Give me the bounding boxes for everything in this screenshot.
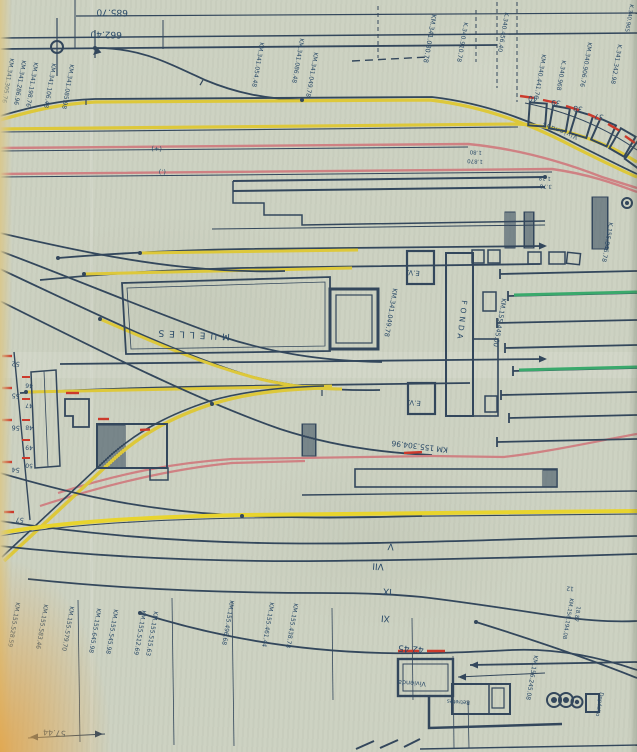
- water-tank-3-center: [575, 700, 579, 704]
- box-row-2: [488, 250, 500, 263]
- plan-label: KM.156.245.08: [524, 655, 539, 701]
- plan-label: K.340.968: [555, 60, 567, 92]
- main-1-dark: [0, 97, 637, 174]
- bottom-arrow-line: [470, 662, 637, 665]
- ev-building-top: [407, 251, 434, 284]
- siding-r-1: [500, 271, 637, 274]
- bottom-div-7: [468, 700, 469, 748]
- long-platform: [355, 469, 557, 487]
- plan-label: VII: [372, 560, 384, 571]
- plan-label: 1.18: [538, 174, 551, 181]
- plan-label: KM.341.054.48: [250, 42, 265, 88]
- plan-label: 49: [25, 443, 33, 451]
- dim-arrow-right: [95, 731, 103, 738]
- bottom-div-2: [172, 598, 174, 745]
- switch-dot: [138, 251, 142, 255]
- switch-dot: [240, 514, 244, 518]
- plan-label: KM.340.441.76: [532, 54, 547, 100]
- plan-label: XI: [381, 612, 391, 623]
- plan-label: KM.155.461.44: [260, 602, 275, 648]
- bottom-edge-line: [420, 745, 637, 749]
- plan-label: (.): [159, 168, 167, 176]
- plan-label: K.340.456.40: [496, 12, 510, 53]
- plan-label: 56: [11, 423, 20, 432]
- plan-label: 55: [11, 391, 20, 400]
- plan-label: 12: [566, 584, 574, 592]
- yellow-bright: [0, 511, 637, 533]
- plan-label: KM.341.086.48: [290, 38, 305, 84]
- switch-dot: [210, 402, 214, 406]
- siding-r-4: [505, 345, 637, 348]
- plan-label: MUELLES: [153, 327, 230, 341]
- plan-label: IX: [383, 585, 393, 596]
- siding-r-3: [497, 320, 637, 323]
- plan-label: 662.40: [90, 28, 122, 39]
- switch-dot: [300, 98, 304, 102]
- narrow-platform-mid: [44, 371, 48, 467]
- plan-label: FONDA: [455, 300, 469, 342]
- track-plan-svg: 685.70662.40KM.341.305.76KM.341.286.96KM…: [0, 0, 637, 752]
- plan-label: KM.155.528.59: [6, 602, 21, 648]
- plan-label: KM.155.583.46: [34, 604, 49, 650]
- switch-dot: [24, 390, 28, 394]
- track-ix-line: [28, 579, 637, 621]
- hatch-mid: [302, 424, 316, 456]
- hatch-col-1: [505, 212, 515, 248]
- platform-edge-1: [233, 177, 545, 181]
- lower-red-right: [432, 434, 637, 457]
- bottom-div-3: [232, 602, 234, 746]
- plan-label: KM.341.305.76: [0, 58, 15, 104]
- plan-label: K.340.910.78: [455, 22, 469, 63]
- siding-r-5-green: [519, 367, 637, 370]
- plan-label: 42 45: [398, 642, 424, 654]
- plan-label: KM.155.438.78: [284, 603, 299, 649]
- box-row-3: [528, 252, 541, 264]
- plan-label: 46: [25, 381, 33, 389]
- double-circle-right-center: [625, 201, 629, 205]
- bottom-div-1: [78, 600, 80, 742]
- plan-label: KM.341.080.78: [421, 14, 437, 64]
- lower-curve-1: [0, 473, 422, 518]
- plan-label: KM.155.545.98: [104, 609, 119, 655]
- plan-label: 1.80: [469, 148, 482, 155]
- scribble-1: [356, 741, 374, 749]
- plan-label: 54: [11, 465, 20, 474]
- bold-square: [330, 289, 378, 349]
- arrow-right: [539, 356, 547, 363]
- plan-label: Depósito: [594, 692, 605, 718]
- arrow-left: [470, 662, 478, 669]
- plan-label: Retretes: [447, 697, 471, 705]
- switch-dot: [474, 620, 478, 624]
- plan-label: 38: [572, 104, 583, 114]
- plan-label: 48: [25, 423, 33, 431]
- bold-square-inner: [336, 295, 372, 343]
- box-row-4: [549, 252, 565, 264]
- plan-label: 50: [25, 461, 33, 469]
- diag-dark: [2, 386, 324, 557]
- side-square-2: [485, 396, 497, 412]
- plan-label: KM.341.049.78: [382, 288, 398, 338]
- track-vii-line: [0, 546, 637, 561]
- plan-label: 40: [527, 94, 538, 104]
- siding-r-8: [497, 439, 637, 442]
- plan-label: 1.870: [467, 157, 484, 164]
- rail-joint: [200, 80, 203, 85]
- plan-label: E.V.: [408, 398, 421, 407]
- plan-label: 685.70: [96, 6, 128, 17]
- dash-row: [352, 57, 428, 61]
- plan-label: 57: [15, 515, 24, 524]
- switch-dot: [56, 256, 60, 260]
- platform-edge-2: [233, 187, 545, 191]
- diag-yellow: [4, 388, 324, 561]
- hatch-col-2: [524, 212, 534, 248]
- narrow-platform: [31, 370, 60, 468]
- siding-r-6: [501, 392, 637, 395]
- plan-label: KM.155.512.69: [132, 610, 147, 656]
- water-tank-1-center: [551, 697, 557, 703]
- br-inner-square: [492, 688, 504, 708]
- switch-dot: [82, 272, 86, 276]
- box-row-5: [566, 252, 580, 264]
- plan-label: K.341.342.98: [609, 44, 623, 85]
- scanned-track-plan: 685.70662.40KM.341.305.76KM.341.286.96KM…: [0, 0, 637, 752]
- siding-r-7: [509, 415, 637, 418]
- below-platform-track: [302, 491, 637, 495]
- arrow-right: [539, 243, 547, 250]
- throat-curve-4: [0, 301, 432, 455]
- plan-label: 39: [550, 98, 561, 108]
- plan-label: KM.341.049.78: [304, 52, 319, 98]
- hatch-platform-end: [543, 470, 557, 487]
- switch-dot: [98, 317, 102, 321]
- arrow-left: [458, 674, 466, 681]
- side-square-1: [483, 292, 496, 311]
- scribble-3: [404, 739, 420, 747]
- anden-box: [398, 659, 453, 696]
- plan-label: K.340.965: [623, 4, 634, 33]
- plan-label: 3.70: [539, 182, 552, 189]
- plan-label: KM.340.906.76: [578, 42, 593, 88]
- plan-label: 57.44: [43, 727, 66, 738]
- branch-curve-top: [97, 48, 302, 100]
- dim-arrow-left: [30, 734, 38, 741]
- red-dash: [140, 429, 150, 430]
- plan-label: KM.155.579.70: [60, 606, 75, 652]
- platform-edge-3: [212, 225, 545, 229]
- main-1-yellow: [0, 100, 637, 177]
- step-building: [65, 399, 89, 427]
- scribble-2: [380, 740, 398, 748]
- plan-label: 47: [25, 401, 33, 409]
- red-dash: [404, 452, 422, 453]
- plan-label: KM.155.645.98: [87, 608, 102, 654]
- plan-label: 37: [593, 112, 604, 122]
- plan-label: (+): [151, 144, 162, 153]
- plan-label: Vivienda: [398, 678, 426, 688]
- water-tank-2-center: [563, 697, 569, 703]
- plan-label: 52: [11, 359, 20, 368]
- plan-label: E.V.: [407, 268, 420, 277]
- bottom-div-4: [332, 608, 333, 700]
- siding-r-2-green: [514, 292, 637, 295]
- plan-label: KM.341.106.48: [42, 63, 57, 109]
- top-rule-1: [76, 13, 637, 16]
- plan-label: 18.87: [572, 606, 581, 623]
